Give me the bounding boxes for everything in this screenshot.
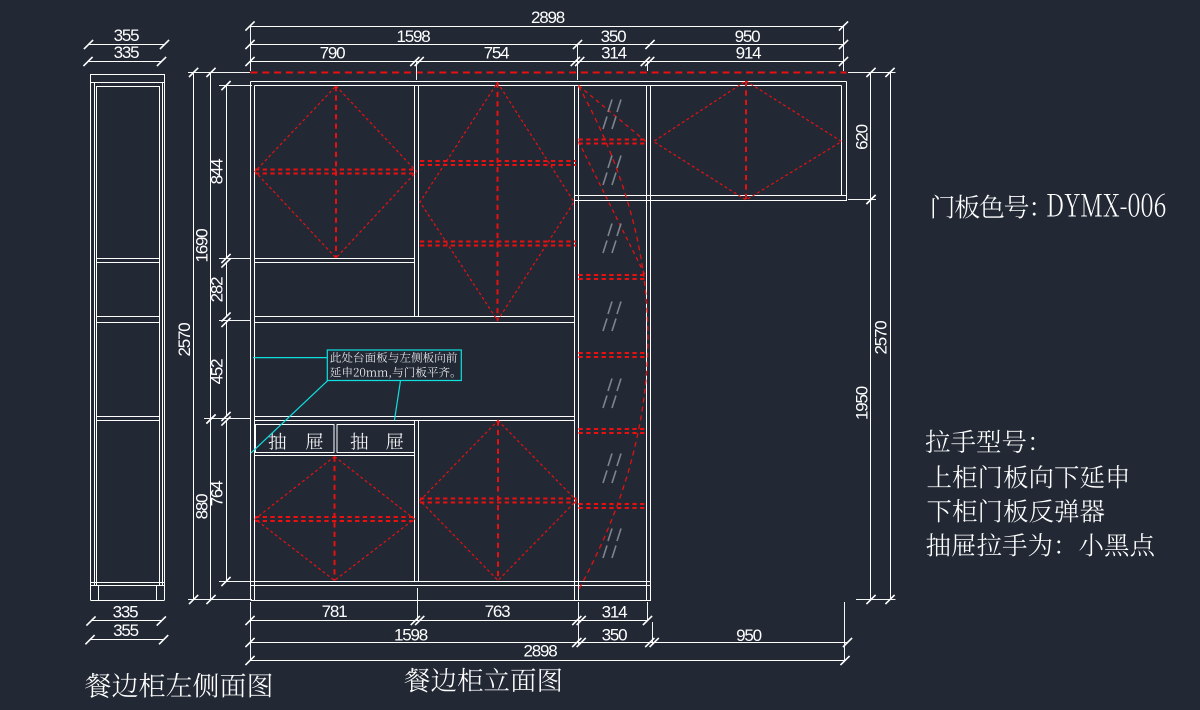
svg-text:620: 620 [852, 124, 871, 150]
svg-text:1950: 1950 [852, 386, 871, 420]
svg-text:335: 335 [114, 43, 140, 62]
svg-text:335: 335 [113, 603, 139, 622]
svg-text:1598: 1598 [394, 626, 428, 645]
svg-text:763: 763 [485, 602, 511, 621]
svg-text:914: 914 [736, 44, 762, 63]
svg-text:764: 764 [207, 481, 226, 507]
svg-text:2898: 2898 [531, 8, 565, 27]
svg-text:2570: 2570 [175, 323, 194, 357]
svg-text:350: 350 [602, 626, 628, 645]
svg-text:781: 781 [322, 602, 348, 621]
svg-text:844: 844 [207, 159, 226, 185]
svg-text:1598: 1598 [396, 27, 430, 46]
svg-text:754: 754 [484, 44, 510, 63]
svg-text:314: 314 [601, 44, 627, 63]
svg-text:314: 314 [602, 603, 628, 622]
svg-text:355: 355 [113, 621, 139, 640]
svg-text:950: 950 [736, 626, 762, 645]
svg-text:282: 282 [207, 277, 226, 303]
svg-text:452: 452 [207, 359, 226, 385]
svg-text:2570: 2570 [872, 321, 891, 355]
svg-text:790: 790 [320, 44, 346, 63]
svg-text:1690: 1690 [192, 229, 211, 263]
svg-text:2898: 2898 [523, 642, 557, 661]
